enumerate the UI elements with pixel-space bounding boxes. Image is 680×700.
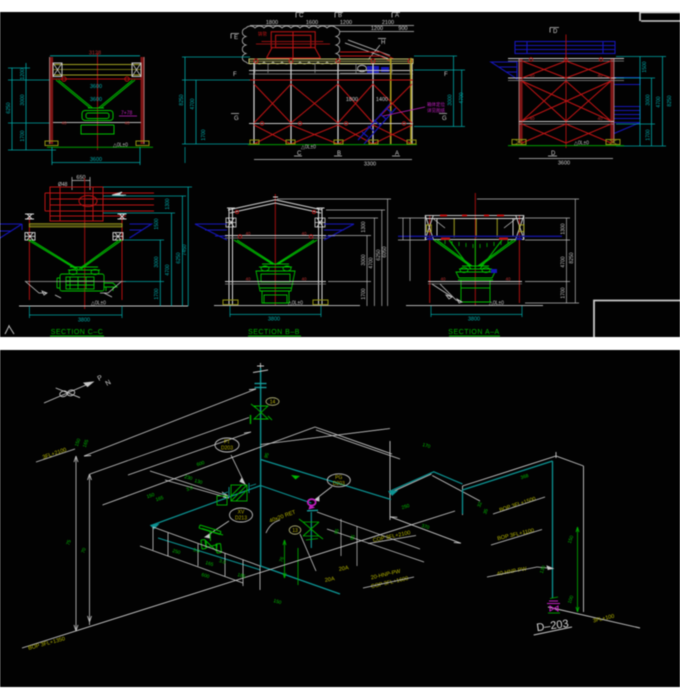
svg-text:H: H (381, 40, 385, 46)
svg-text:1700: 1700 (561, 287, 567, 298)
svg-text:40: 40 (245, 277, 251, 282)
svg-text:1300: 1300 (561, 223, 567, 234)
svg-text:SECTION C–C: SECTION C–C (51, 329, 104, 336)
svg-text:△0L±0: △0L±0 (489, 300, 504, 306)
svg-text:4700: 4700 (656, 96, 662, 107)
svg-text:△0L±0: △0L±0 (574, 141, 589, 147)
svg-text:8250: 8250 (667, 95, 673, 106)
svg-text:3800: 3800 (468, 317, 480, 323)
svg-text:40: 40 (440, 277, 446, 282)
svg-text:△0L±0: △0L±0 (91, 301, 106, 307)
svg-text:△0L±0: △0L±0 (288, 300, 303, 306)
svg-text:3800: 3800 (268, 317, 280, 323)
svg-text:△0L±0: △0L±0 (113, 143, 128, 149)
svg-text:4700: 4700 (165, 264, 171, 275)
svg-text:2100: 2100 (382, 20, 394, 26)
svg-text:3600: 3600 (90, 157, 102, 163)
svg-text:3000: 3000 (20, 94, 26, 105)
svg-text:G: G (442, 116, 447, 122)
svg-text:D203: D203 (221, 446, 233, 452)
svg-text:1500: 1500 (154, 218, 160, 229)
svg-text:3600: 3600 (90, 84, 102, 90)
svg-text:13: 13 (292, 528, 298, 534)
svg-text:G: G (234, 116, 239, 122)
svg-text:3000: 3000 (646, 94, 652, 105)
svg-text:40: 40 (301, 231, 307, 236)
svg-text:7+78: 7+78 (121, 111, 132, 117)
svg-text:F: F (444, 72, 448, 78)
svg-text:4700: 4700 (190, 98, 196, 109)
svg-text:1700: 1700 (154, 288, 160, 299)
svg-text:7450: 7450 (182, 244, 188, 255)
svg-text:3300: 3300 (364, 162, 376, 168)
svg-text:4700: 4700 (561, 256, 567, 267)
svg-text:1800: 1800 (266, 20, 278, 26)
svg-text:D: D (553, 29, 558, 35)
svg-text:3600: 3600 (90, 97, 102, 103)
svg-text:14: 14 (270, 400, 276, 406)
svg-text:1300: 1300 (361, 221, 367, 232)
svg-text:箱体定位: 箱体定位 (427, 101, 445, 108)
svg-text:1700: 1700 (361, 288, 367, 299)
svg-text:1600: 1600 (306, 20, 318, 26)
svg-text:3000: 3000 (361, 254, 367, 265)
svg-text:1400: 1400 (376, 97, 388, 103)
svg-text:C: C (299, 13, 304, 19)
svg-text:40: 40 (505, 277, 511, 282)
svg-text:B: B (338, 13, 342, 19)
svg-text:D203: D203 (333, 481, 345, 487)
svg-text:40: 40 (61, 121, 67, 126)
svg-text:△0L±0: △0L±0 (301, 145, 316, 151)
svg-text:1700: 1700 (646, 129, 652, 140)
svg-text:40: 40 (301, 277, 307, 282)
svg-text:8250: 8250 (569, 252, 575, 263)
svg-text:1300: 1300 (165, 198, 171, 209)
svg-text:A: A (395, 13, 399, 19)
svg-text:SECTION B–B: SECTION B–B (248, 329, 300, 336)
svg-text:铸管: 铸管 (258, 31, 267, 38)
svg-text:8250: 8250 (179, 94, 185, 105)
svg-text:40: 40 (124, 121, 130, 126)
svg-text:SECTION A–A: SECTION A–A (448, 329, 499, 336)
svg-text:3128: 3128 (89, 51, 101, 57)
svg-text:40: 40 (245, 231, 251, 236)
svg-text:详见图纸: 详见图纸 (427, 107, 445, 114)
svg-text:1500: 1500 (642, 61, 648, 72)
svg-text:1200: 1200 (20, 68, 26, 79)
svg-text:F: F (233, 72, 237, 78)
svg-text:6250: 6250 (6, 102, 12, 113)
svg-text:6050: 6050 (382, 246, 388, 257)
svg-text:1700: 1700 (20, 130, 26, 141)
svg-text:3600: 3600 (558, 161, 570, 167)
svg-text:D213: D213 (235, 516, 247, 522)
svg-text:E: E (234, 35, 238, 41)
svg-text:900: 900 (398, 26, 407, 32)
svg-text:3800: 3800 (78, 318, 90, 324)
svg-text:4700: 4700 (369, 257, 375, 268)
svg-text:1700: 1700 (201, 129, 207, 140)
svg-text:1800: 1800 (346, 97, 358, 103)
svg-text:3000: 3000 (154, 256, 160, 267)
svg-text:1200: 1200 (371, 26, 383, 32)
svg-text:1200: 1200 (340, 20, 352, 26)
svg-text:4700: 4700 (459, 92, 465, 103)
svg-text:3000: 3000 (448, 94, 454, 105)
